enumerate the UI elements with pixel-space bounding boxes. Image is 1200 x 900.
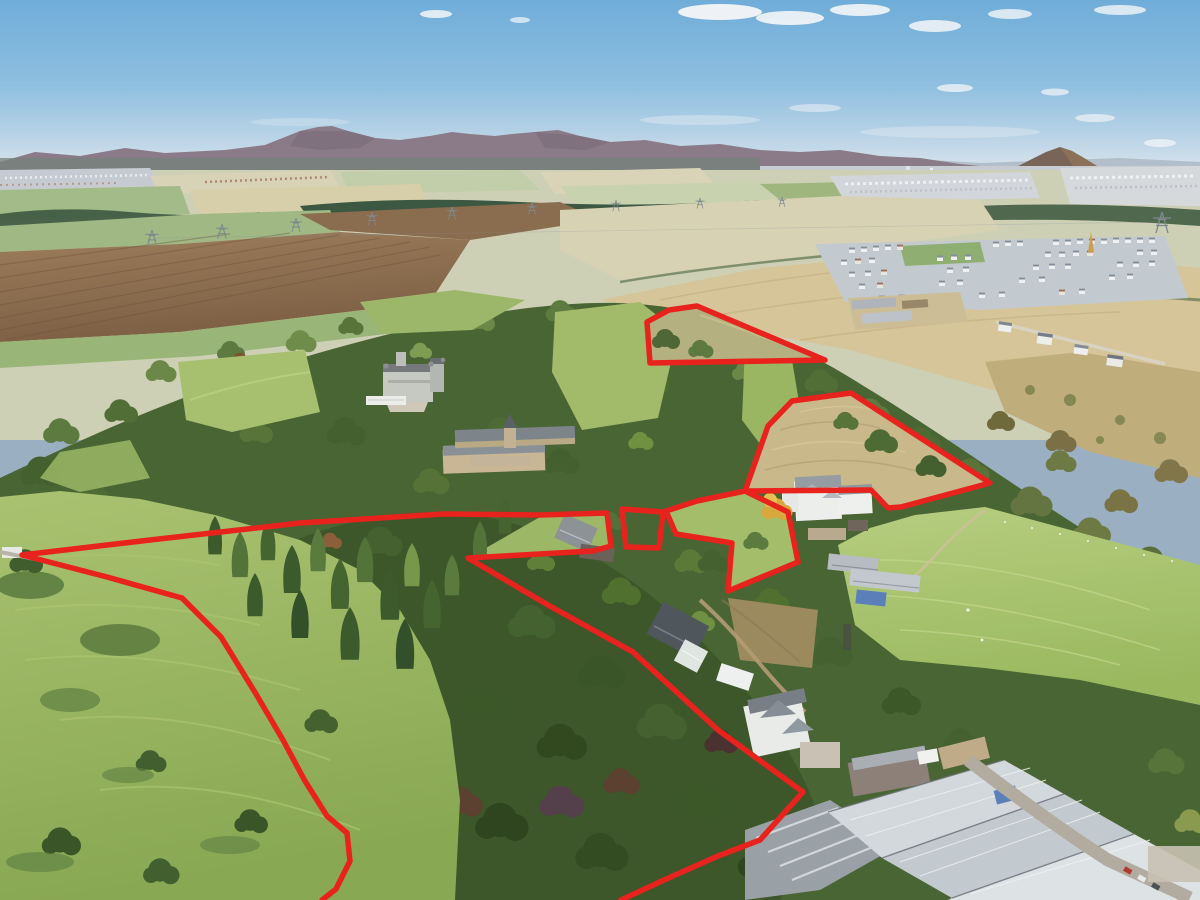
hay-strip — [728, 598, 818, 668]
house-yard — [800, 742, 840, 768]
parking-area — [1148, 846, 1200, 882]
farmhouse-deck — [808, 528, 846, 540]
aerial-photo — [0, 0, 1200, 900]
farmhouse-shed — [848, 520, 868, 531]
aerial-photo-canvas — [0, 0, 1200, 900]
pole-structure — [843, 624, 851, 650]
rough-grassland — [985, 352, 1200, 478]
